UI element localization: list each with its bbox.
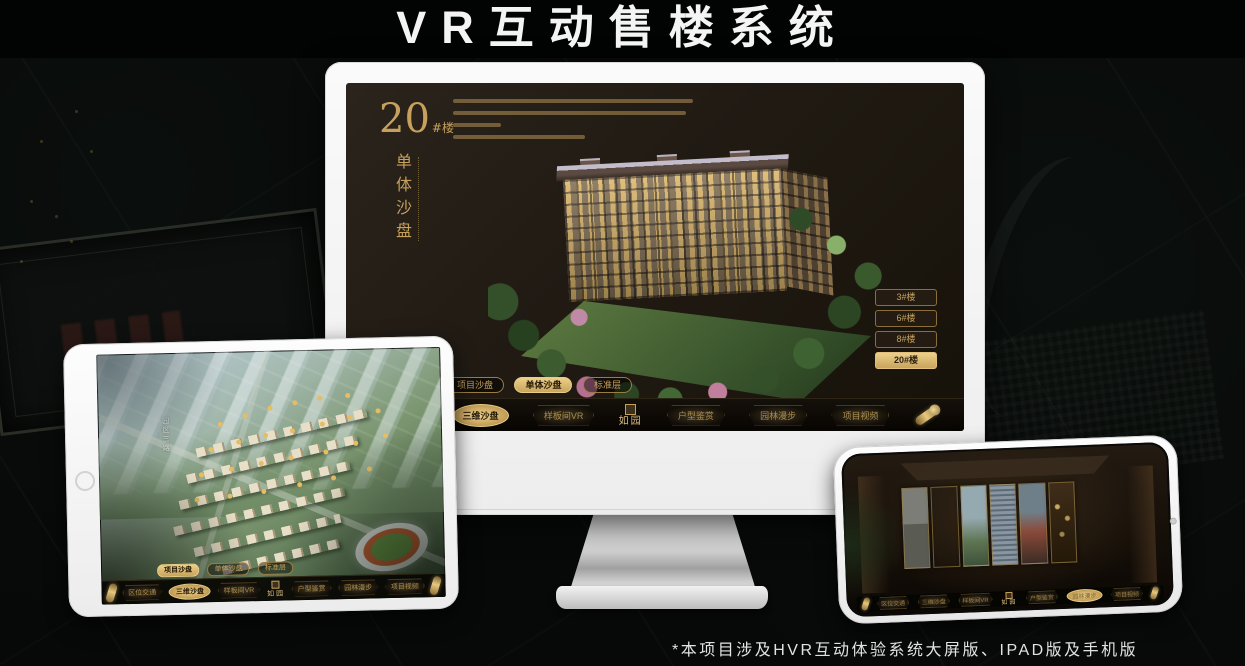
- gallery-card[interactable]: [901, 487, 930, 569]
- sub-tab-single-sandtable[interactable]: 单体沙盘: [207, 562, 249, 576]
- nav-item-3d-sandtable[interactable]: 三维沙盘: [169, 583, 211, 600]
- intro-text-line: [453, 135, 585, 139]
- seal-icon: [1005, 591, 1012, 598]
- monitor-stand-neck: [570, 512, 756, 590]
- nav-item-floorplans[interactable]: 户型鉴赏: [291, 580, 331, 597]
- building-button[interactable]: 3#楼: [875, 289, 937, 306]
- background-gold-specks: [60, 95, 63, 98]
- tablet-screen: 园区三路 项目沙盘 单体沙盘 标准层 区位交通 三维沙盘 样板间VR 如园 户型…: [96, 347, 446, 605]
- nav-item-showroom-vr[interactable]: 样板间VR: [533, 405, 595, 426]
- building-heading: 20#楼: [379, 99, 454, 139]
- nav-item-3d-sandtable[interactable]: 三维沙盘: [917, 594, 949, 608]
- tablet-sub-tabs: 项目沙盘 单体沙盘 标准层: [157, 556, 297, 577]
- gallery-card[interactable]: [931, 486, 960, 568]
- model-landscape-trees: [488, 147, 884, 405]
- intro-text-line: [453, 111, 686, 115]
- building-button[interactable]: 6#楼: [875, 310, 937, 327]
- scroll-icon: [105, 583, 118, 603]
- sub-tab-standard-floor[interactable]: 标准层: [583, 377, 632, 393]
- scroll-icon: [861, 597, 871, 611]
- nav-item-project-video[interactable]: 项目视频: [831, 405, 889, 426]
- monitor-stand-base: [556, 586, 768, 609]
- nav-item-showroom-vr[interactable]: 样板间VR: [958, 593, 993, 607]
- vertical-title-divider: [418, 157, 419, 241]
- footnote-text: *本项目涉及HVR互动体验系统大屏版、IPAD版及手机版: [672, 636, 1138, 660]
- gallery-card[interactable]: [1019, 482, 1048, 564]
- nav-item-location[interactable]: 区位交通: [122, 584, 162, 601]
- building-3d-model[interactable]: [496, 153, 876, 401]
- interior-door-frame-right: [1126, 465, 1157, 583]
- nav-item-garden-walk[interactable]: 园林漫步: [338, 579, 378, 596]
- nav-item-location[interactable]: 区位交通: [877, 596, 909, 610]
- nav-item-garden-walk[interactable]: 园林漫步: [1066, 588, 1102, 602]
- nav-item-floorplans[interactable]: 户型鉴赏: [1026, 590, 1058, 604]
- intro-text-line: [453, 99, 693, 103]
- intro-text-lines: [453, 99, 693, 147]
- sandtable-sub-tabs: 项目沙盘 单体沙盘 标准层: [446, 375, 638, 393]
- building-number: 20: [379, 96, 430, 142]
- sub-tab-standard-floor[interactable]: 标准层: [258, 561, 293, 575]
- seal-icon: [625, 404, 636, 415]
- sub-tab-project-sandtable[interactable]: 项目沙盘: [446, 377, 504, 393]
- brand-logo: 如园: [267, 580, 285, 597]
- scroll-icon: [429, 575, 442, 595]
- scroll-icon[interactable]: [913, 404, 939, 426]
- scene-gallery: [901, 481, 1077, 569]
- nav-item-project-video[interactable]: 项目视频: [385, 578, 425, 595]
- page-title: VR互动售楼系统: [0, 0, 1245, 58]
- scroll-icon: [1150, 586, 1160, 600]
- nav-item-garden-walk[interactable]: 园林漫步: [749, 405, 807, 426]
- brand-logo: 如园: [1001, 591, 1018, 606]
- nav-item-3d-sandtable[interactable]: 三维沙盘: [453, 404, 509, 427]
- camera-icon: [1170, 518, 1177, 525]
- nav-item-floorplans[interactable]: 户型鉴赏: [667, 405, 725, 426]
- nav-item-project-video[interactable]: 项目视频: [1111, 587, 1143, 601]
- section-vertical-title: 单体沙盘: [390, 153, 414, 245]
- building-number-suffix: #楼: [432, 121, 454, 135]
- brand-logo-text: 如园: [619, 417, 643, 427]
- sub-tab-project-sandtable[interactable]: 项目沙盘: [157, 563, 199, 577]
- tablet-device: 园区三路 项目沙盘 单体沙盘 标准层 区位交通 三维沙盘 样板间VR 如园 户型…: [63, 336, 459, 618]
- brand-logo: 如园: [619, 404, 643, 427]
- building-button[interactable]: 8#楼: [875, 331, 937, 348]
- interior-plant-shadow: [842, 485, 905, 601]
- building-button-active[interactable]: 20#楼: [875, 352, 937, 369]
- gallery-card[interactable]: [989, 484, 1018, 566]
- phone-device: 区位交通 三维沙盘 样板间VR 如园 户型鉴赏 园林漫步 项目视频: [833, 434, 1184, 624]
- intro-text-line: [453, 123, 501, 127]
- home-button[interactable]: [75, 470, 95, 490]
- seal-icon: [272, 581, 280, 589]
- building-selector: 3#楼 6#楼 8#楼 20#楼: [875, 289, 937, 373]
- poster-canvas: VR互动售楼系统 20#楼 单体沙盘: [0, 0, 1245, 666]
- gallery-card[interactable]: [1048, 481, 1077, 563]
- sub-tab-single-sandtable[interactable]: 单体沙盘: [514, 377, 572, 393]
- gallery-card[interactable]: [960, 485, 989, 567]
- brand-logo-text: 如园: [1001, 599, 1017, 606]
- nav-item-showroom-vr[interactable]: 样板间VR: [217, 582, 260, 599]
- brand-logo-text: 如园: [267, 590, 285, 597]
- phone-screen: 区位交通 三维沙盘 样板间VR 如园 户型鉴赏 园林漫步 项目视频: [841, 442, 1174, 617]
